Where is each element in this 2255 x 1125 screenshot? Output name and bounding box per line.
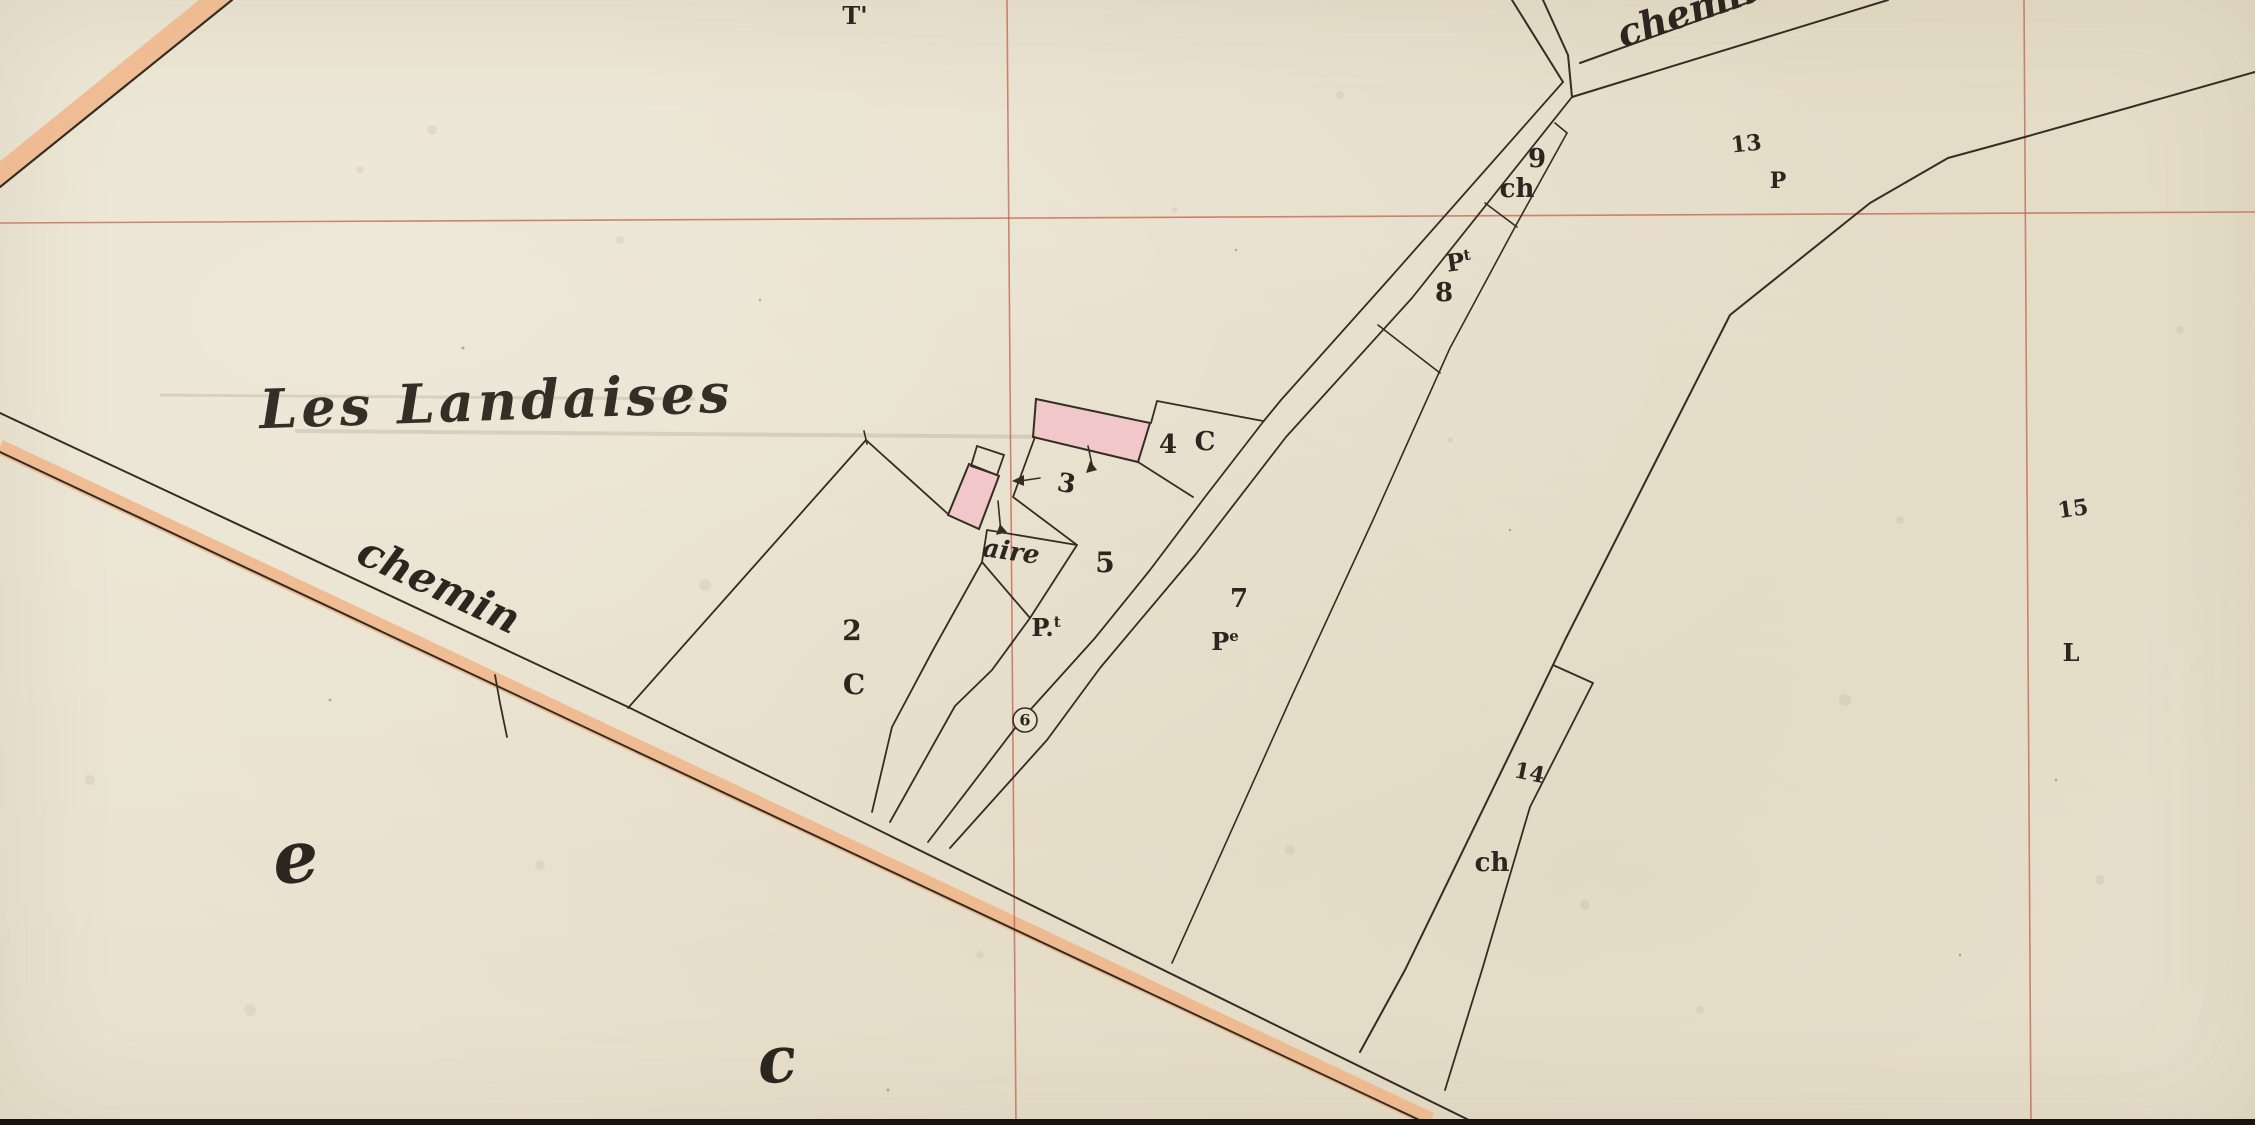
cadastral-map-viewport[interactable]: Les LandaiseschemincheminT'9chPt813P4C3a… xyxy=(0,0,2255,1125)
label-parcel-8-p: Pt xyxy=(1444,245,1473,277)
paper-speckle xyxy=(85,775,95,785)
scan-bottom-border xyxy=(0,1119,2255,1125)
paper-speckle xyxy=(356,166,364,174)
road-center-east-edge xyxy=(950,97,1572,848)
paper-speckle xyxy=(616,236,624,244)
paper-speckle xyxy=(535,860,545,870)
paper-speck xyxy=(887,1089,890,1092)
label-parcel-9: 9 xyxy=(1528,144,1546,174)
label-t-prime: T' xyxy=(842,1,867,30)
label-parcel-5: 5 xyxy=(1095,546,1114,579)
building-main-pink xyxy=(1033,399,1150,462)
label-parcel-13: 13 xyxy=(1730,130,1763,159)
paper-speck xyxy=(759,299,761,301)
label-parcel-4-c: C xyxy=(1195,427,1216,457)
label-parcel-14: 14 xyxy=(1512,757,1547,789)
parcel-4-top-boundary xyxy=(1151,401,1263,423)
label-section-e: e xyxy=(268,812,322,901)
paper-speckle xyxy=(1896,516,1904,524)
label-parcel-14-ch: ch xyxy=(1475,848,1510,878)
paper-speckle xyxy=(2095,875,2105,885)
label-parcel-6-circled: 6 xyxy=(1019,711,1030,730)
label-section-c: c xyxy=(753,1021,800,1100)
label-parcel-2: 2 xyxy=(842,614,861,647)
label-parcel-9-ch: ch xyxy=(1500,174,1535,204)
parcel-2-left-boundary xyxy=(628,440,866,708)
label-les-landaises: Les Landaises xyxy=(256,361,734,442)
paper-speckle xyxy=(1447,437,1453,443)
parcel-2-top-boundary xyxy=(866,440,948,514)
paper-speckle xyxy=(1696,1006,1704,1014)
road-north-left-edge xyxy=(1512,0,1563,82)
east-long-boundary xyxy=(1360,72,2255,1052)
paper-speckle xyxy=(1336,91,1344,99)
cadastral-map-canvas[interactable]: Les LandaiseschemincheminT'9chPt813P4C3a… xyxy=(0,0,2255,1125)
label-parcel-7-p: Pe xyxy=(1211,627,1239,656)
parcel-4-bottom-boundary xyxy=(1138,462,1193,497)
label-parcel-2-c: C xyxy=(843,668,865,701)
parcel-9-top-bracket xyxy=(1555,123,1567,133)
label-parcel-13-p: P xyxy=(1770,168,1787,194)
parcel-8-lower-division xyxy=(1378,325,1440,373)
strip-parcel-right-boundary xyxy=(1172,133,1567,963)
paper-speck xyxy=(462,347,465,350)
parcel-14-right-boundary xyxy=(1445,683,1593,1090)
road-topleft-edge xyxy=(0,0,232,187)
label-parcel-15: 15 xyxy=(2056,494,2090,524)
paper-speck xyxy=(2055,779,2058,782)
parcel-5-west-boundary xyxy=(890,618,1030,822)
paper-speckle xyxy=(699,579,711,591)
road-north-right-edge xyxy=(1543,0,1572,97)
paper-speckle xyxy=(427,125,437,135)
label-aire: aire xyxy=(981,533,1042,571)
paper-speckle xyxy=(976,951,984,959)
label-parcel-4: 4 xyxy=(1159,430,1177,460)
label-chemin-northeast: chemin xyxy=(1611,0,1774,56)
red-grid-vertical-right xyxy=(2024,0,2031,1125)
paper-speck xyxy=(1235,249,1237,251)
label-parcel-7: 7 xyxy=(1230,584,1248,614)
paper-speckle xyxy=(1580,900,1590,910)
road-topleft-orange-wash xyxy=(0,0,226,179)
road-bottom-upper-edge xyxy=(0,413,1479,1125)
parcel-2-right-boundary xyxy=(872,562,982,812)
label-parcel-8: 8 xyxy=(1435,278,1453,308)
paper-speckle xyxy=(244,1004,256,1016)
label-parcel-3: 3 xyxy=(1055,468,1078,501)
paper-speck xyxy=(1509,529,1511,531)
red-grid-horizontal xyxy=(0,212,2255,223)
paper-speck xyxy=(329,699,332,702)
paper-speckle xyxy=(1839,694,1851,706)
paper-speckle xyxy=(1285,845,1295,855)
road-bottom-lower-edge xyxy=(0,452,1430,1125)
road-bottom-orange-wash xyxy=(0,447,1431,1120)
label-parcel-5-p: P.t xyxy=(1031,613,1060,642)
label-parcel-15-l: L xyxy=(2063,638,2080,667)
paper-speck xyxy=(1959,954,1962,957)
paper-speckle xyxy=(2176,326,2184,334)
parcel-14-notch xyxy=(1553,665,1593,683)
paper-speckle xyxy=(1172,207,1178,213)
